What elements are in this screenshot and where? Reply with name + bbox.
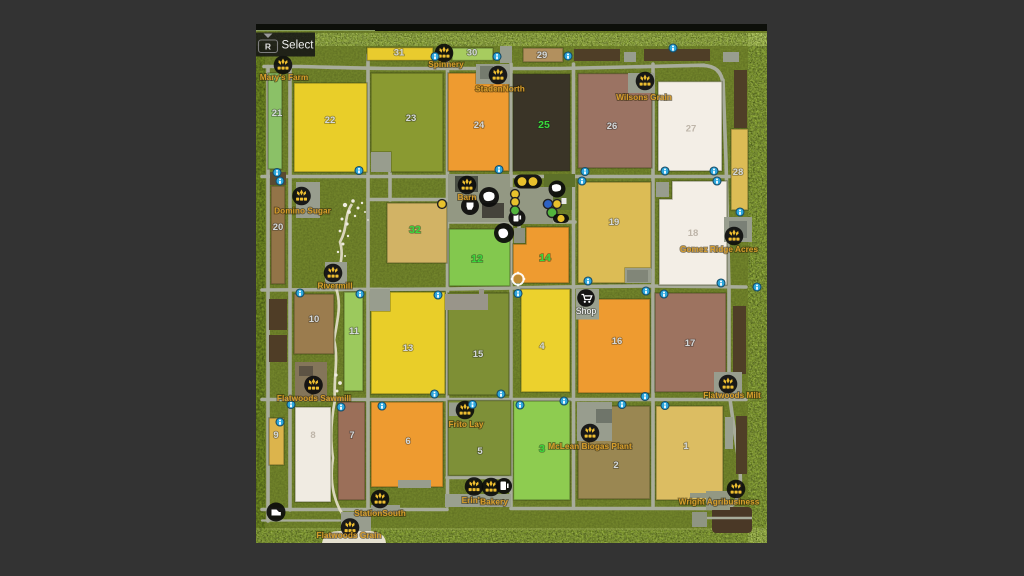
svg-text:Rivermill: Rivermill <box>317 281 352 291</box>
svg-text:14: 14 <box>539 252 551 264</box>
svg-text:Select: Select <box>282 40 315 52</box>
svg-text:Mary's Farm: Mary's Farm <box>260 72 309 82</box>
svg-text:Flatwoods Grain: Flatwoods Grain <box>317 530 382 540</box>
svg-text:3: 3 <box>539 443 545 455</box>
svg-text:Bakery: Bakery <box>480 497 508 507</box>
svg-text:24: 24 <box>474 120 485 131</box>
svg-text:Gomez Ridge Acres: Gomez Ridge Acres <box>680 244 758 254</box>
svg-text:R: R <box>265 42 271 52</box>
svg-text:30: 30 <box>467 48 478 59</box>
svg-text:4: 4 <box>539 341 545 352</box>
svg-text:8: 8 <box>310 430 315 441</box>
svg-text:27: 27 <box>686 124 697 135</box>
svg-text:9: 9 <box>273 430 278 441</box>
svg-text:5: 5 <box>477 446 483 457</box>
svg-text:Flatwoods Sawmill: Flatwoods Sawmill <box>277 393 351 403</box>
svg-text:32: 32 <box>409 224 421 236</box>
svg-text:Barn: Barn <box>458 192 477 202</box>
svg-text:Domino Sugar: Domino Sugar <box>274 206 331 216</box>
svg-text:26: 26 <box>607 121 618 132</box>
svg-text:23: 23 <box>406 113 417 124</box>
svg-text:13: 13 <box>403 343 414 354</box>
svg-text:Flatwoods Milt: Flatwoods Milt <box>703 390 761 400</box>
svg-text:McLean Biogas Plant: McLean Biogas Plant <box>548 441 632 451</box>
svg-text:16: 16 <box>612 336 623 347</box>
svg-text:StationSouth: StationSouth <box>354 508 406 518</box>
svg-text:22: 22 <box>325 115 336 126</box>
svg-text:31: 31 <box>394 48 405 59</box>
svg-text:Wright Agribusiness: Wright Agribusiness <box>679 497 760 507</box>
svg-text:Spinnery: Spinnery <box>428 59 464 69</box>
svg-text:28: 28 <box>733 167 744 178</box>
svg-text:29: 29 <box>537 50 548 61</box>
svg-text:17: 17 <box>685 338 696 349</box>
svg-text:Wilsons Grain: Wilsons Grain <box>616 92 672 102</box>
svg-text:11: 11 <box>349 326 360 337</box>
svg-text:15: 15 <box>473 349 484 360</box>
svg-text:6: 6 <box>405 436 410 447</box>
svg-text:20: 20 <box>273 222 284 233</box>
svg-text:Shop: Shop <box>576 306 597 316</box>
svg-text:19: 19 <box>609 217 620 228</box>
svg-text:21: 21 <box>272 108 283 119</box>
svg-text:18: 18 <box>688 228 699 239</box>
svg-text:25: 25 <box>538 119 550 131</box>
svg-text:1: 1 <box>683 441 689 452</box>
svg-text:2: 2 <box>613 460 618 471</box>
svg-text:Frito Lay: Frito Lay <box>448 419 483 429</box>
svg-text:10: 10 <box>309 314 320 325</box>
svg-text:12: 12 <box>471 253 483 265</box>
svg-text:StadenNorth: StadenNorth <box>475 84 525 94</box>
svg-text:7: 7 <box>349 430 354 441</box>
